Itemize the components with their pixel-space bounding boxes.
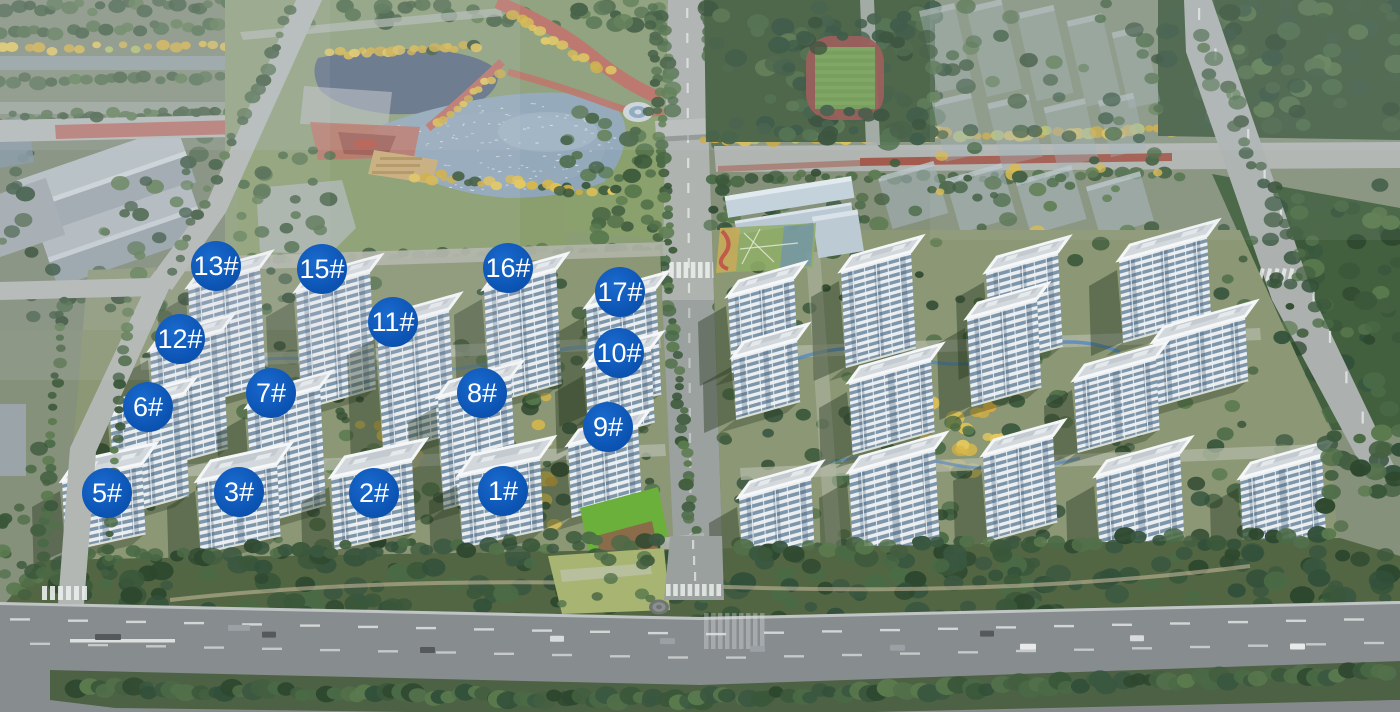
svg-text:8#: 8# [467, 378, 497, 408]
svg-text:13#: 13# [193, 251, 238, 281]
svg-text:12#: 12# [157, 324, 202, 354]
svg-text:3#: 3# [224, 477, 254, 507]
svg-text:17#: 17# [597, 277, 642, 307]
svg-text:5#: 5# [92, 478, 122, 508]
svg-text:11#: 11# [371, 307, 414, 337]
svg-text:1#: 1# [488, 476, 518, 506]
svg-text:10#: 10# [596, 338, 641, 368]
svg-text:16#: 16# [485, 253, 530, 283]
svg-text:7#: 7# [256, 378, 286, 408]
svg-text:15#: 15# [299, 254, 344, 284]
svg-text:2#: 2# [359, 478, 389, 508]
svg-text:9#: 9# [593, 412, 623, 442]
svg-text:6#: 6# [133, 392, 163, 422]
